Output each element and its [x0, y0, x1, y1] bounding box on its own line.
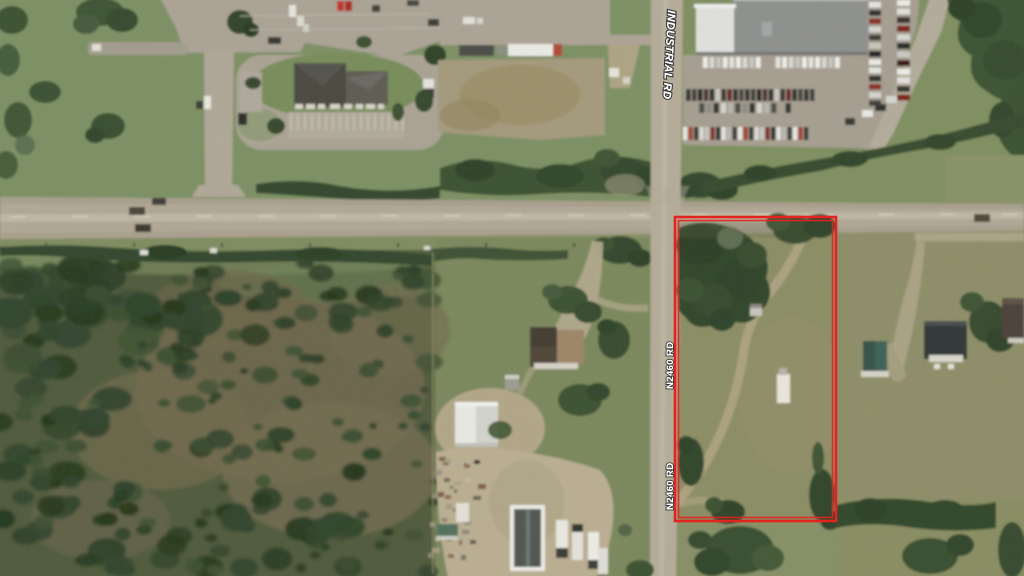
svg-text:N2460 RD: N2460 RD	[665, 462, 676, 510]
svg-text:N2460 RD: N2460 RD	[665, 341, 676, 389]
